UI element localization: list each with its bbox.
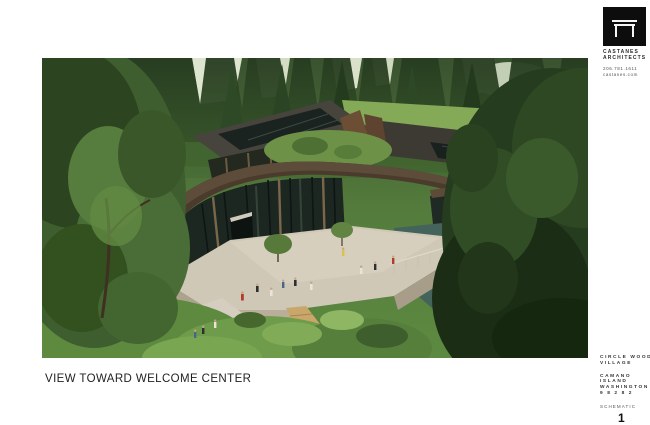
project-phase: SCHEMATIC [600,404,648,410]
firm-name-line2: ARCHITECTS [603,55,648,61]
firm-logo [603,7,646,46]
project-name-line1: CIRCLE WOOD [600,355,648,361]
firm-logo-block: CASTANES ARCHITECTS 206.781.1611 castane… [603,7,648,77]
firm-website: castanes.com [603,72,648,78]
presentation-sheet: CASTANES ARCHITECTS 206.781.1611 castane… [0,0,650,421]
sheet-number: 1 [618,411,648,425]
view-caption: VIEW TOWARD WELCOME CENTER [45,373,251,385]
architectural-rendering [42,58,588,358]
arch-table-logo-icon [603,7,646,46]
sheet-title-block: CIRCLE WOOD VILLAGE CAMANO ISLAND WASHIN… [600,355,648,425]
rendering-illustration [42,58,588,358]
